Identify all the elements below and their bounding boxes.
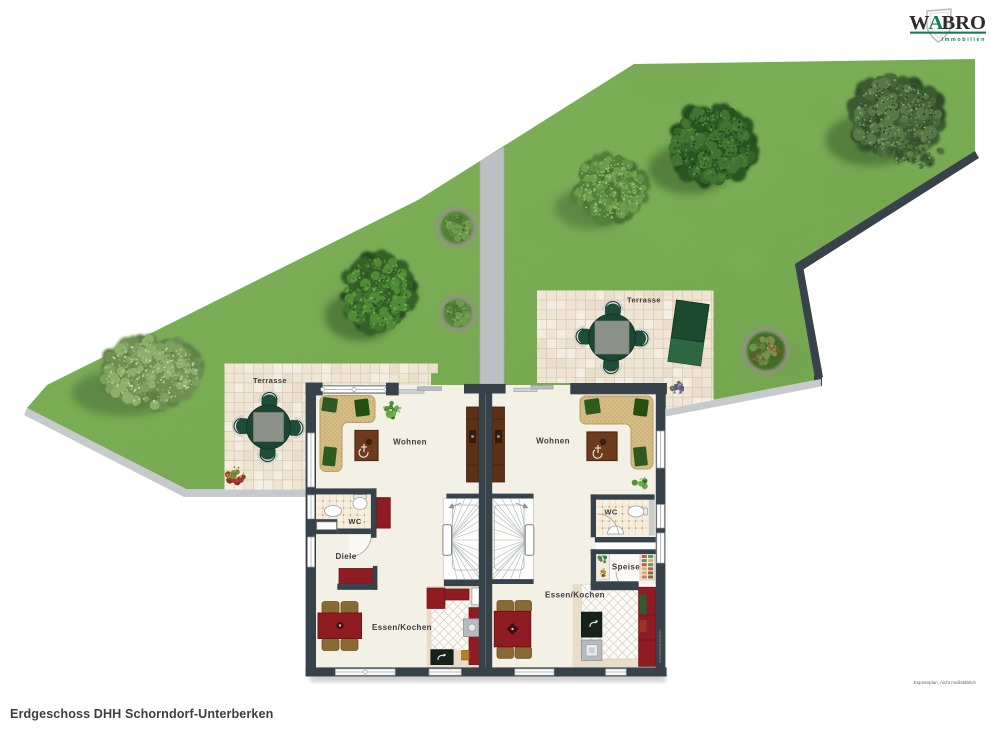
svg-text:WC: WC [348,517,361,526]
svg-text:Diele: Diele [335,552,356,561]
svg-text:Terrasse: Terrasse [253,376,287,385]
svg-text:Essen/Kochen: Essen/Kochen [545,591,605,600]
svg-text:BRO: BRO [942,12,986,34]
svg-text:Erdgeschoss DHH Schorndorf-Unt: Erdgeschoss DHH Schorndorf-Unterberken [10,707,273,721]
svg-text:Wohnen: Wohnen [393,438,427,447]
svg-text:Terrasse: Terrasse [627,296,661,305]
svg-text:Essen/Kochen: Essen/Kochen [372,623,432,632]
svg-text:Wohnen: Wohnen [536,437,570,446]
svg-text:Speise: Speise [612,563,640,572]
svg-text:Immobilien: Immobilien [942,37,986,43]
svg-text:W: W [909,12,930,34]
svg-text:WC: WC [604,508,617,517]
svg-text:Exposeplan, nicht maßstäblich: Exposeplan, nicht maßstäblich [914,680,977,685]
svg-text:Ausstattungsbeispiel: Ausstattungsbeispiel [658,630,662,663]
